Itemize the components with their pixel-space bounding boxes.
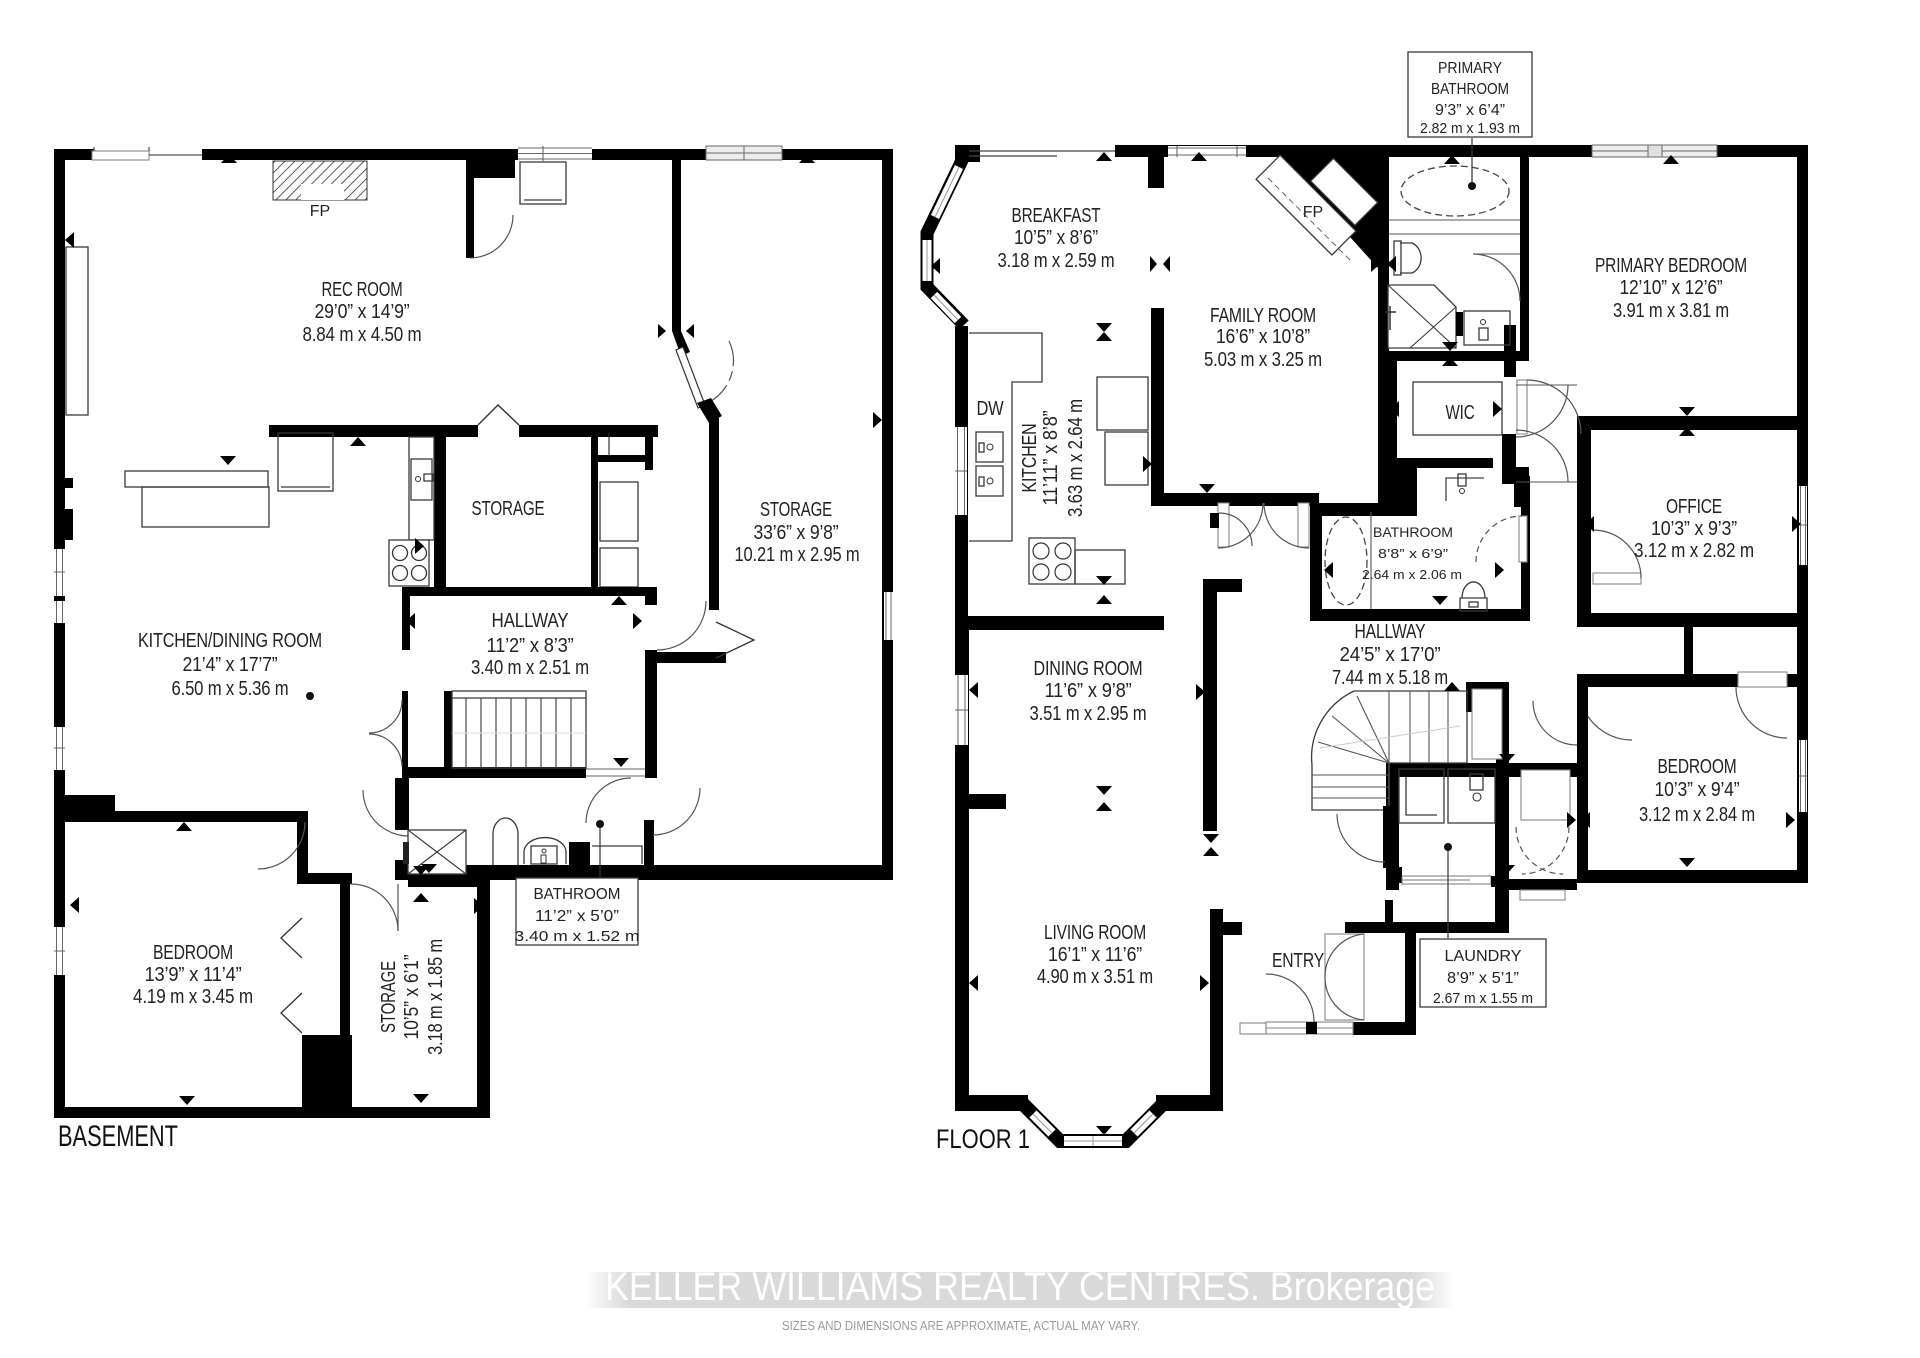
svg-text:LAUNDRY: LAUNDRY: [1445, 948, 1522, 965]
svg-text:10.21 m x 2.95 m: 10.21 m x 2.95 m: [735, 544, 860, 566]
svg-text:ENTRY: ENTRY: [1272, 950, 1324, 972]
svg-text:4.90 m x 3.51 m: 4.90 m x 3.51 m: [1037, 966, 1153, 988]
svg-text:13’9” x 11’4”: 13’9” x 11’4”: [145, 964, 242, 986]
svg-text:10’5” x 8’6”: 10’5” x 8’6”: [1014, 227, 1098, 249]
svg-text:3.63 m x 2.64 m: 3.63 m x 2.64 m: [1065, 399, 1087, 517]
svg-text:BASEMENT: BASEMENT: [58, 1120, 178, 1153]
svg-text:3.12 m x 2.84 m: 3.12 m x 2.84 m: [1639, 804, 1755, 826]
svg-text:7.44 m x 5.18 m: 7.44 m x 5.18 m: [1332, 667, 1448, 689]
svg-text:3.40 m x 2.51 m: 3.40 m x 2.51 m: [471, 657, 589, 679]
svg-text:HALLWAY: HALLWAY: [1355, 621, 1426, 643]
svg-text:8.84 m x 4.50 m: 8.84 m x 4.50 m: [303, 324, 422, 346]
svg-text:BATHROOM: BATHROOM: [1431, 81, 1509, 98]
svg-text:3.12 m x 2.82 m: 3.12 m x 2.82 m: [1634, 540, 1754, 562]
svg-text:KITCHEN/DINING ROOM: KITCHEN/DINING ROOM: [138, 630, 322, 652]
svg-text:11’11” x 8’8”: 11’11” x 8’8”: [1040, 411, 1062, 506]
svg-text:8’9” x 5’1”: 8’9” x 5’1”: [1447, 970, 1519, 987]
svg-text:24’5” x 17’0”: 24’5” x 17’0”: [1340, 644, 1441, 666]
svg-text:2.64 m x 2.06 m: 2.64 m x 2.06 m: [1362, 567, 1462, 582]
svg-text:3.51 m x 2.95 m: 3.51 m x 2.95 m: [1030, 703, 1147, 725]
svg-text:STORAGE: STORAGE: [760, 499, 832, 521]
svg-text:8’8” x 6’9”: 8’8” x 6’9”: [1378, 546, 1448, 561]
svg-text:10’3” x 9’3”: 10’3” x 9’3”: [1651, 518, 1737, 540]
svg-text:3.40 m x 1.52 m: 3.40 m x 1.52 m: [515, 928, 640, 945]
svg-text:11’2” x 5’0”: 11’2” x 5’0”: [535, 908, 619, 925]
svg-text:11’2” x 8’3”: 11’2” x 8’3”: [487, 635, 574, 657]
svg-text:FP: FP: [310, 203, 330, 220]
svg-text:3.91 m x 3.81 m: 3.91 m x 3.81 m: [1613, 300, 1729, 322]
svg-text:KITCHEN: KITCHEN: [1019, 424, 1041, 493]
svg-text:12’10” x 12’6”: 12’10” x 12’6”: [1620, 277, 1723, 299]
svg-text:DW: DW: [977, 398, 1004, 420]
svg-text:9’3” x 6’4”: 9’3” x 6’4”: [1435, 102, 1505, 119]
svg-text:33’6” x 9’8”: 33’6” x 9’8”: [754, 522, 839, 544]
svg-text:DINING ROOM: DINING ROOM: [1034, 658, 1143, 680]
svg-text:10’3” x 9’4”: 10’3” x 9’4”: [1655, 779, 1740, 801]
svg-text:STORAGE: STORAGE: [378, 961, 400, 1033]
svg-text:16’6” x 10’8”: 16’6” x 10’8”: [1216, 326, 1310, 348]
svg-text:WIC: WIC: [1446, 402, 1475, 424]
svg-text:2.67 m x 1.55 m: 2.67 m x 1.55 m: [1433, 990, 1533, 1007]
svg-text:5.03 m x 3.25 m: 5.03 m x 3.25 m: [1204, 349, 1322, 371]
svg-text:10’5” x 6’1”: 10’5” x 6’1”: [401, 955, 423, 1040]
svg-text:16’1” x 11’6”: 16’1” x 11’6”: [1048, 944, 1142, 966]
svg-text:29’0” x 14’9”: 29’0” x 14’9”: [315, 301, 410, 323]
svg-text:PRIMARY BEDROOM: PRIMARY BEDROOM: [1595, 255, 1747, 277]
svg-text:BATHROOM: BATHROOM: [1373, 524, 1453, 540]
svg-text:SIZES AND DIMENSIONS ARE APPRO: SIZES AND DIMENSIONS ARE APPROXIMATE, AC…: [782, 1318, 1140, 1333]
svg-text:21’4” x 17’7”: 21’4” x 17’7”: [183, 654, 278, 676]
svg-text:BREAKFAST: BREAKFAST: [1012, 205, 1101, 227]
svg-text:2.82 m x 1.93 m: 2.82 m x 1.93 m: [1420, 120, 1520, 137]
svg-text:3.18 m x 1.85 m: 3.18 m x 1.85 m: [425, 939, 447, 1055]
svg-text:FP: FP: [1303, 204, 1323, 221]
svg-text:OFFICE: OFFICE: [1666, 496, 1722, 518]
svg-text:BEDROOM: BEDROOM: [1658, 756, 1737, 778]
svg-text:REC ROOM: REC ROOM: [322, 279, 403, 301]
svg-text:HALLWAY: HALLWAY: [492, 610, 569, 632]
svg-text:3.18 m x 2.59 m: 3.18 m x 2.59 m: [998, 250, 1115, 272]
svg-text:6.50 m x 5.36 m: 6.50 m x 5.36 m: [172, 678, 289, 700]
svg-text:KELLER WILLIAMS REALTY CENTRES: KELLER WILLIAMS REALTY CENTRES. Brokerag…: [605, 1265, 1435, 1309]
svg-text:4.19 m x 3.45 m: 4.19 m x 3.45 m: [133, 986, 253, 1008]
svg-text:11’6” x 9’8”: 11’6” x 9’8”: [1045, 680, 1132, 702]
svg-text:LIVING ROOM: LIVING ROOM: [1044, 922, 1146, 944]
svg-text:BATHROOM: BATHROOM: [534, 886, 621, 903]
svg-text:FAMILY ROOM: FAMILY ROOM: [1210, 305, 1316, 327]
svg-text:FLOOR 1: FLOOR 1: [936, 1124, 1030, 1154]
svg-text:PRIMARY: PRIMARY: [1438, 60, 1502, 77]
svg-text:STORAGE: STORAGE: [472, 498, 545, 520]
svg-text:BEDROOM: BEDROOM: [153, 942, 233, 964]
